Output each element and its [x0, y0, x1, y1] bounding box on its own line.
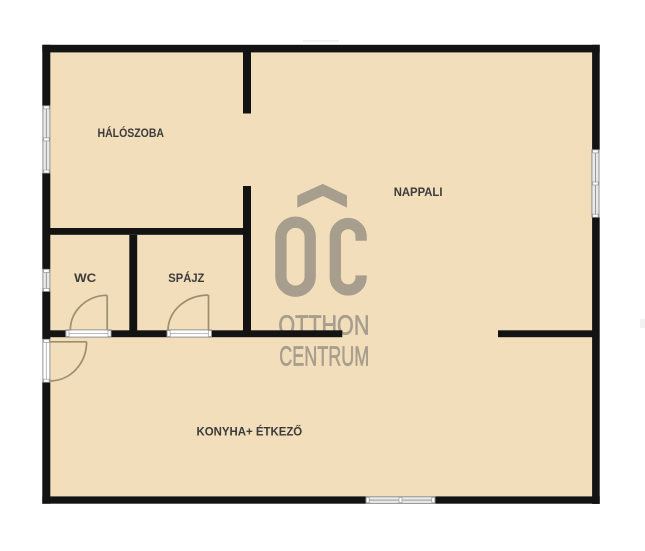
svg-text:SPÁJZ: SPÁJZ — [168, 270, 204, 285]
svg-text:KONYHA+ ÉTKEZŐ: KONYHA+ ÉTKEZŐ — [197, 424, 303, 439]
svg-text:HÁLÓSZOBA: HÁLÓSZOBA — [98, 125, 165, 140]
svg-text:NAPPALI: NAPPALI — [394, 185, 443, 199]
svg-text:CENTRUM: CENTRUM — [279, 341, 369, 372]
svg-text:WC: WC — [74, 271, 96, 285]
